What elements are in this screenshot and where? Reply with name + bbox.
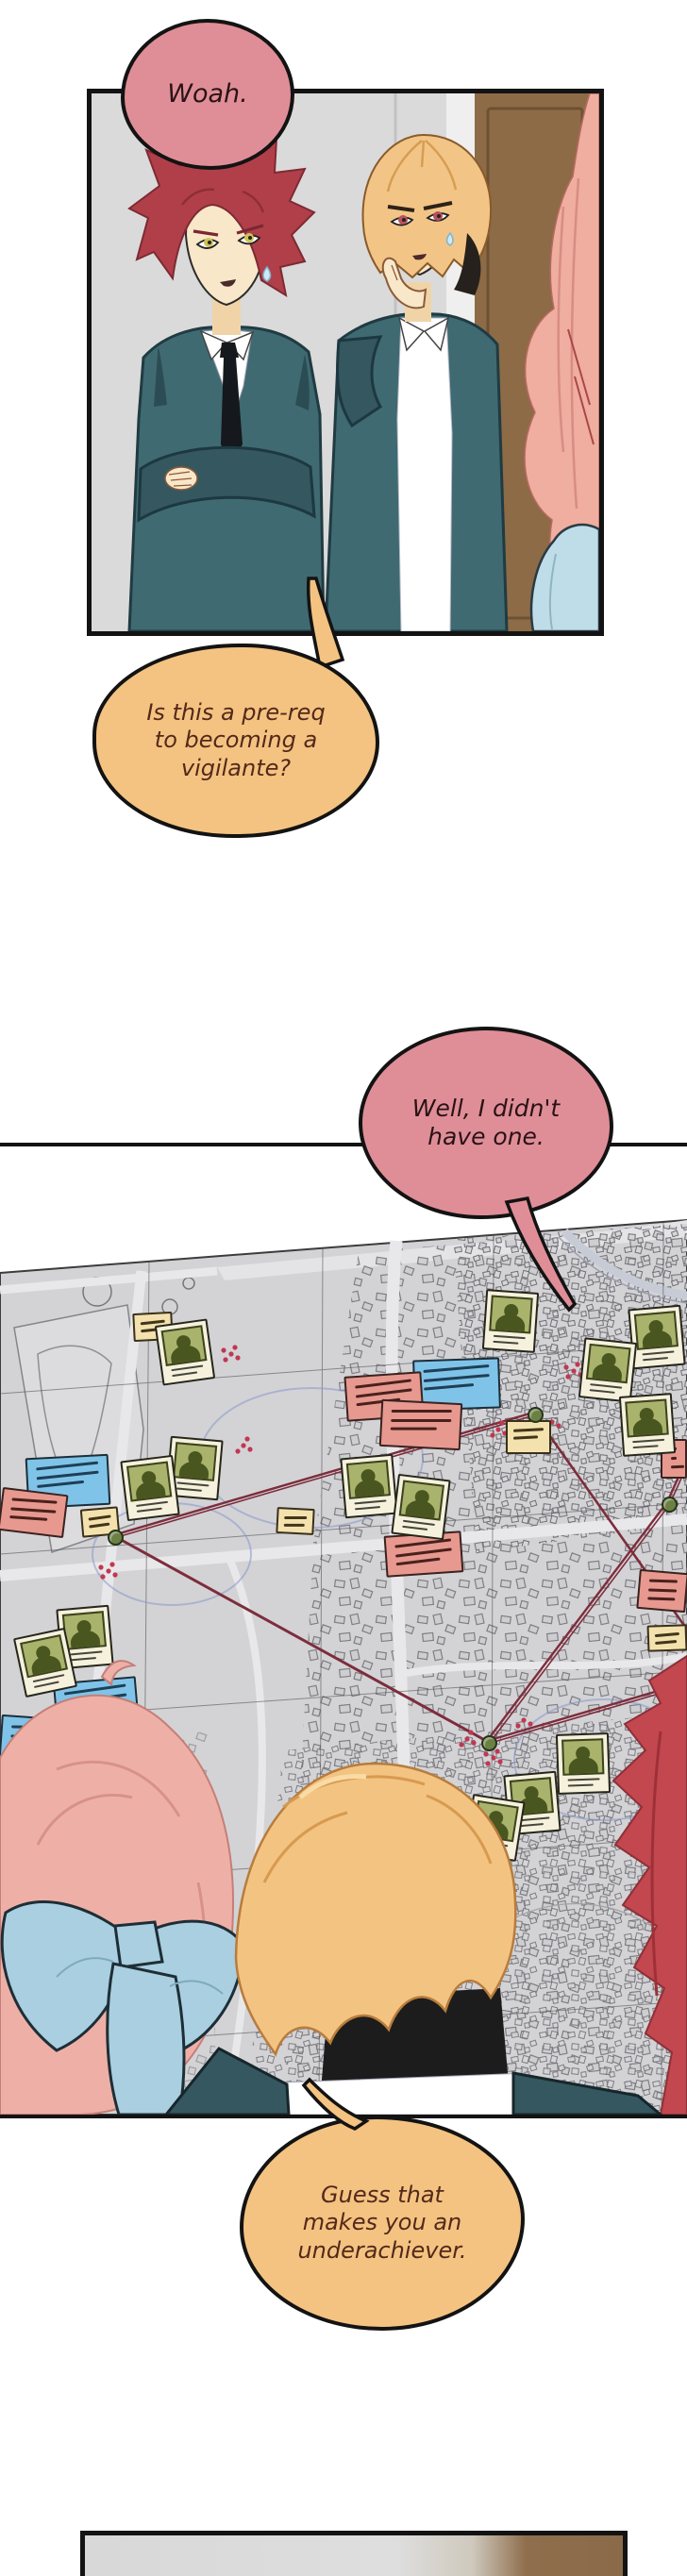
speech-bubble-no-prereq: Well, I didn't have one. <box>359 1027 613 1219</box>
panel-hallway-students <box>87 89 604 636</box>
speech-bubble-underachiever: Guess that makes you an underachiever. <box>240 2116 525 2331</box>
speech-bubble-woah: Woah. <box>121 19 294 170</box>
orange-haired-boy <box>166 1764 661 2115</box>
speech-tail <box>300 2074 376 2133</box>
bubble-text: Guess that makes you an underachiever. <box>297 2182 466 2265</box>
bubble-text: Woah. <box>167 79 247 110</box>
bubble-text: Is this a pre-req to becoming a vigilant… <box>146 699 325 782</box>
red-spiky-haired-character <box>613 1656 687 2115</box>
panel-investigation-map <box>0 1143 687 2118</box>
speech-bubble-prereq: Is this a pre-req to becoming a vigilant… <box>92 644 379 838</box>
foreground-characters <box>0 1146 687 2115</box>
comic-page: Woah. Is this a pre-req to becoming a vi… <box>0 0 687 2576</box>
panel-next-partial <box>80 2531 628 2576</box>
pink-haired-girl <box>0 1661 243 2115</box>
panel-hallway-art <box>92 93 599 631</box>
speech-tail <box>495 1196 580 1319</box>
bubble-text: Well, I didn't have one. <box>412 1095 560 1152</box>
